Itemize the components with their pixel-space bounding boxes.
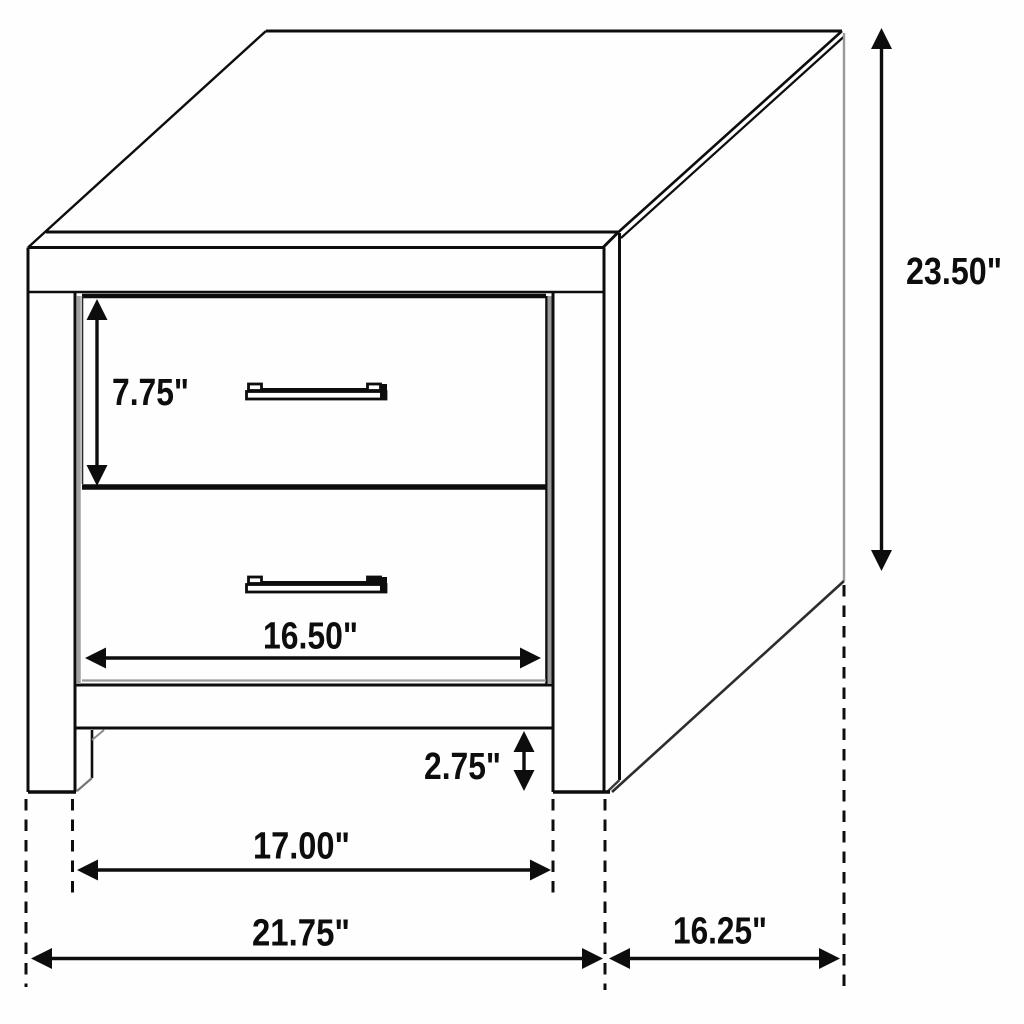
- svg-text:16.25": 16.25": [673, 911, 767, 953]
- svg-text:7.75": 7.75": [112, 372, 189, 414]
- svg-text:17.00": 17.00": [253, 826, 350, 868]
- svg-text:16.50": 16.50": [263, 616, 358, 658]
- svg-text:2.75": 2.75": [424, 746, 501, 788]
- svg-text:23.50": 23.50": [906, 251, 1002, 293]
- svg-text:21.75": 21.75": [252, 913, 350, 955]
